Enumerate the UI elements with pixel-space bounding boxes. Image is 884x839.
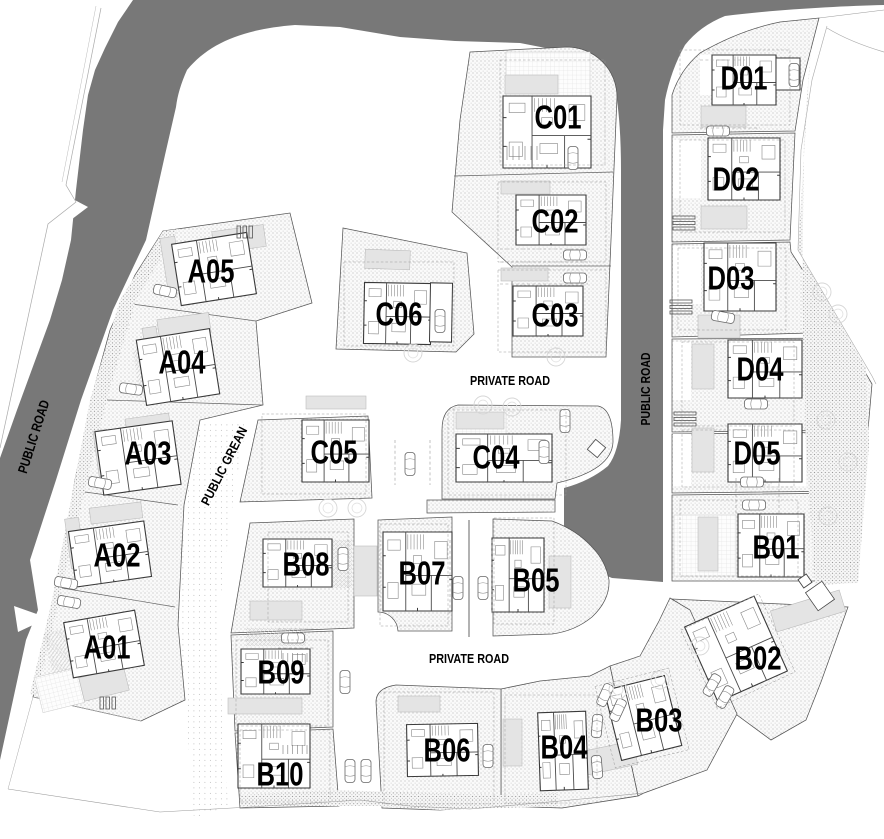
svg-text:A05: A05 [188,253,235,290]
svg-text:D02: D02 [713,161,760,198]
svg-text:C02: C02 [532,203,579,240]
svg-text:B04: B04 [541,729,588,766]
svg-text:D05: D05 [734,435,781,472]
svg-text:D04: D04 [737,351,784,388]
svg-text:C06: C06 [376,296,423,333]
svg-text:A01: A01 [84,629,131,666]
svg-text:B07: B07 [399,555,446,592]
svg-text:B02: B02 [735,640,782,677]
svg-text:A03: A03 [125,435,172,472]
svg-text:A04: A04 [159,344,206,381]
svg-text:D01: D01 [721,60,768,97]
svg-text:B08: B08 [283,546,330,583]
svg-text:PRIVATE ROAD: PRIVATE ROAD [429,651,509,666]
svg-text:C01: C01 [535,99,582,136]
svg-text:D03: D03 [708,260,755,297]
svg-text:B10: B10 [257,756,304,793]
svg-text:A02: A02 [94,537,141,574]
svg-text:C03: C03 [532,297,579,334]
svg-text:B06: B06 [424,732,471,769]
svg-text:B05: B05 [513,562,560,599]
svg-text:B09: B09 [258,654,305,691]
svg-text:B01: B01 [753,529,800,566]
svg-text:C05: C05 [311,434,358,471]
svg-text:B03: B03 [636,702,683,739]
svg-text:PRIVATE ROAD: PRIVATE ROAD [470,373,550,388]
svg-text:PUBLIC ROAD: PUBLIC ROAD [638,353,653,426]
svg-text:C04: C04 [473,439,520,476]
